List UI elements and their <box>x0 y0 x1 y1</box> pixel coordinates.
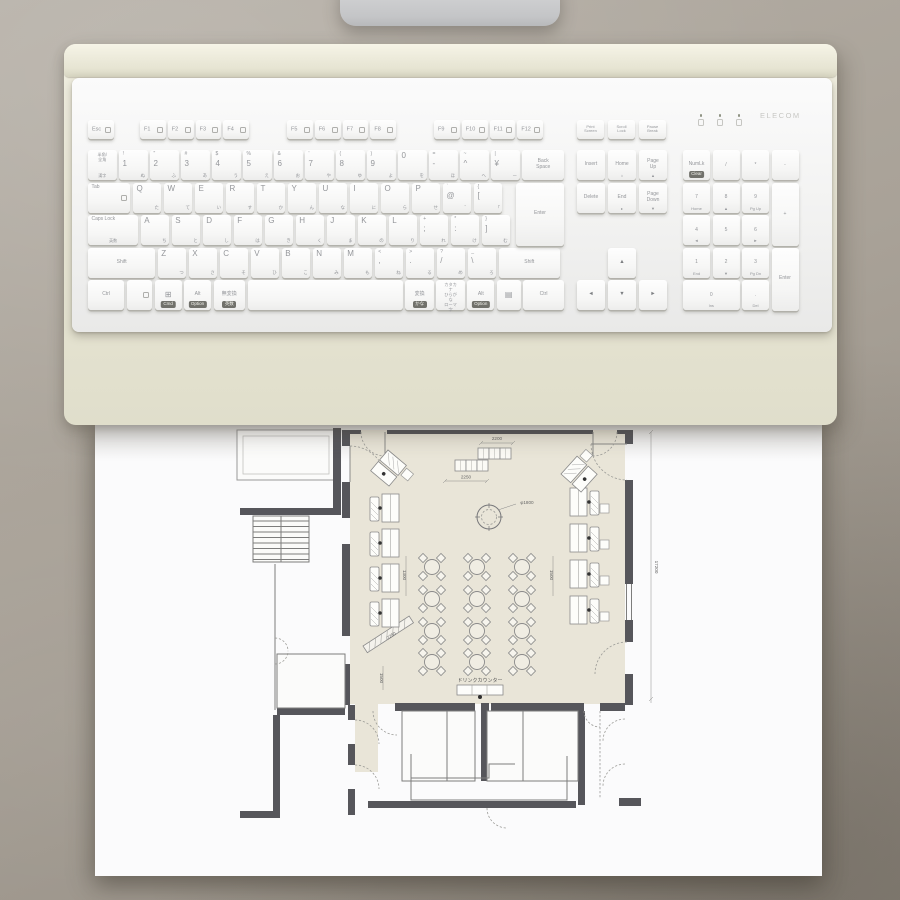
key-label: 無変換 <box>222 292 237 298</box>
key-label: 7 <box>695 195 698 200</box>
round-table <box>470 592 485 607</box>
key-kana-label: よ <box>389 174 394 179</box>
key-shift-label: * <box>454 217 456 222</box>
key-kana-label: た <box>154 206 159 211</box>
kb-main-block: 半角/ 全角漢字!1ぬ"2ふ#3あ$4う%5え&6お'7や(8ゆ)9よ0を=-ほ… <box>88 150 564 313</box>
key-shift-label: $ <box>216 152 219 157</box>
side-table <box>600 504 609 513</box>
key-f: Fは <box>234 215 263 245</box>
key-insert: Insert <box>577 150 605 180</box>
dimension-label: 1500 <box>379 673 384 684</box>
key-shift-label: _ <box>471 250 474 255</box>
key-f5: F5 <box>287 120 313 139</box>
round-table <box>515 655 530 670</box>
key-sub-label: Home <box>691 207 702 211</box>
scroll-lock-icon <box>736 119 742 126</box>
key-label: Shift <box>524 260 534 266</box>
key-shift-label: < <box>378 250 381 255</box>
key-shift-label: ~ <box>464 152 467 157</box>
key-kana-label: せ <box>433 206 438 211</box>
f3-icon <box>212 127 218 133</box>
key-label: カタカナ ひらがな ローマ字 <box>443 282 457 312</box>
key-kana-label: こ <box>303 271 308 276</box>
key-label: 6 <box>754 228 757 233</box>
key-label: Q <box>136 185 142 193</box>
key-f4: F4 <box>223 120 249 139</box>
plan-annex-room <box>237 430 335 480</box>
key-2: "2ふ <box>150 150 179 180</box>
key-o: Oら <box>381 183 410 213</box>
dimension-label: 1300 <box>402 570 407 581</box>
key-label: @ <box>446 192 454 200</box>
key-7: '7や <box>305 150 334 180</box>
key-label: 9 <box>371 160 375 168</box>
key-kana-label: め <box>458 271 463 276</box>
key-x: Xさ <box>189 248 218 278</box>
key-numpad-plus: + <box>772 183 799 246</box>
f6-icon <box>332 127 338 133</box>
key-numpad-4: 4◄ <box>683 215 710 245</box>
key-shift-label: ? <box>440 250 443 255</box>
key-label: . <box>409 257 411 265</box>
key-label: F12 <box>521 127 530 133</box>
key-label: ] <box>485 225 487 233</box>
key-label: W <box>167 185 175 193</box>
key-kana-label: き <box>286 239 291 244</box>
key-v: Vひ <box>251 248 280 278</box>
key-label: ^ <box>464 160 468 168</box>
key-numpad-enter: Enter <box>772 248 799 311</box>
key-i: Iに <box>350 183 379 213</box>
key-label: / <box>725 163 726 168</box>
key-kana-label: ん <box>309 206 314 211</box>
key-numpad-3: 3Pg Dn <box>742 248 769 278</box>
key-label: L <box>392 217 396 225</box>
key-label: E <box>198 185 203 193</box>
kb-row-1: 半角/ 全角漢字!1ぬ"2ふ#3あ$4う%5え&6お'7や(8ゆ)9よ0を=-ほ… <box>88 150 564 180</box>
key-kana-label: な <box>340 206 345 211</box>
led-dot <box>700 114 703 117</box>
key-kana-label: む <box>503 239 508 244</box>
key-label: Back Space <box>536 159 550 171</box>
f5-icon <box>304 127 310 133</box>
key-menu: ▤ <box>497 280 521 310</box>
key-label: 6 <box>278 160 282 168</box>
key-kana-label: ろ <box>489 271 494 276</box>
key-kana-label: ほ <box>451 174 456 179</box>
key-label: F <box>237 217 242 225</box>
key-shift-label: ( <box>340 152 342 157</box>
f12-icon <box>534 127 540 133</box>
key-3: #3あ <box>181 150 210 180</box>
key-delete: Delete <box>577 183 605 213</box>
key-kana-label: ひ <box>272 271 277 276</box>
key-sub-label: ▼ <box>651 207 655 211</box>
kb-system-keys: Print ScreenScroll LockPause Break <box>577 120 666 139</box>
key-sub-label: ▼ <box>724 272 728 276</box>
key-label: / <box>440 257 442 265</box>
key-space <box>248 280 403 310</box>
key-shift-label: { <box>477 185 479 190</box>
key-period: >.る <box>406 248 435 278</box>
key-label: Delete <box>584 195 598 201</box>
booth-left <box>370 494 399 522</box>
key-semicolon: +;れ <box>420 215 449 245</box>
key-kana-label: や <box>327 174 332 179</box>
key-kana-label: す <box>247 206 252 211</box>
key-f6: F6 <box>315 120 341 139</box>
key-a: Aち <box>141 215 170 245</box>
key-shift-label: ' <box>309 152 310 157</box>
key-caps-lock: Caps Lock英数 <box>88 215 138 245</box>
key-f8: F8 <box>370 120 396 139</box>
key-lbracket: {[「 <box>474 183 503 213</box>
side-table <box>600 576 609 585</box>
key-fn <box>127 280 152 310</box>
key-label: 2 <box>154 160 158 168</box>
key-kana-label: さ <box>210 271 215 276</box>
round-table <box>425 592 440 607</box>
key-label: P <box>415 185 420 193</box>
key-m: Mも <box>344 248 373 278</box>
key-kana-label: へ <box>482 174 487 179</box>
key-label: 4 <box>695 228 698 233</box>
fkey-group-2: F5F6F7F8 <box>287 120 396 139</box>
esc-icon <box>105 127 111 133</box>
key-label: 1 <box>695 260 698 265</box>
key-kana-label: く <box>317 239 322 244</box>
key-label: Y <box>291 185 296 193</box>
key-label: NumLk <box>689 162 705 168</box>
key-g: Gき <box>265 215 294 245</box>
key-mac-badge: かな <box>413 301 427 308</box>
key-enter: Enter <box>516 183 564 246</box>
key-kana-label: ふ <box>172 174 177 179</box>
person-marker <box>378 541 382 545</box>
key-kana-label: る <box>427 271 432 276</box>
key-backslash: _\ろ <box>468 248 497 278</box>
key-kana-label: い <box>216 206 221 211</box>
key-b: Bこ <box>282 248 311 278</box>
side-table <box>600 612 609 621</box>
key-sub-label: Pg Dn <box>750 272 761 276</box>
key-home: Home⌂ <box>608 150 636 180</box>
key-label: F9 <box>438 127 444 133</box>
key-label: N <box>316 250 322 258</box>
key-mac-badge: 英数 <box>222 301 236 308</box>
key-label: 5 <box>247 160 251 168</box>
key-caret: ~^へ <box>460 150 489 180</box>
kb-row-3: Caps Lock英数AちSとDしFはGきHくJまKのLり+;れ*:け}]む <box>88 215 564 245</box>
key-label: Insert <box>585 162 598 168</box>
key-shift-label: } <box>485 217 487 222</box>
kb-row-4: ShiftZつXさCそVひBこNみMも<,ね>.る?/め_\ろShift <box>88 248 564 278</box>
key-page-up: Page Up▲ <box>639 150 667 180</box>
key-kana-label: う <box>234 174 239 179</box>
key-1: !1ぬ <box>119 150 148 180</box>
fkey-group-1: F1F2F3F4 <box>140 120 249 139</box>
key-numpad-slash: / <box>713 150 740 180</box>
key-label: H <box>299 217 305 225</box>
round-table <box>470 560 485 575</box>
key-label: A <box>144 217 149 225</box>
key-label: 0 <box>402 152 406 160</box>
key-label: 2 <box>725 260 728 265</box>
person-marker <box>378 611 382 615</box>
key-kana-label: も <box>365 271 370 276</box>
key-pause-break: Pause Break <box>639 120 666 139</box>
key-kana-label: の <box>379 239 384 244</box>
key-katakana-hiragana: カタカナ ひらがな ローマ字 <box>436 280 465 310</box>
key-n: Nみ <box>313 248 342 278</box>
key-label: Ctrl <box>102 292 110 298</box>
key-rbracket: }]む <box>482 215 511 245</box>
round-table <box>425 560 440 575</box>
key-sub-label: End <box>693 272 700 276</box>
key-ctrl-left: Ctrl <box>88 280 124 310</box>
dimension-label: 1500 <box>549 570 554 581</box>
key-mac-badge: Clear <box>689 171 705 178</box>
key-scroll-lock: Scroll Lock <box>608 120 635 139</box>
key-shift-label: # <box>185 152 188 157</box>
key-label: U <box>322 185 328 193</box>
key-alt-right: AltOption <box>467 280 494 310</box>
key-kana-label: み <box>334 271 339 276</box>
key-label: ► <box>650 292 655 298</box>
key-numpad-9: 9Pg Up <box>742 183 769 213</box>
round-table <box>470 655 485 670</box>
key-f11: F11 <box>490 120 516 139</box>
key-kana-label: は <box>255 239 260 244</box>
key-label: 5 <box>725 228 728 233</box>
key-kana-label: 「 <box>495 206 500 211</box>
key-shift-label: + <box>423 217 426 222</box>
key-numpad-8: 8▲ <box>713 183 740 213</box>
f10-icon <box>479 127 485 133</box>
key-q: Qた <box>133 183 162 213</box>
person-marker <box>587 536 591 540</box>
key-label: ⊞ <box>165 291 172 299</box>
key-label: 9 <box>754 195 757 200</box>
key-0: 0を <box>398 150 427 180</box>
key-comma: <,ね <box>375 248 404 278</box>
key-arrow-left: ◄ <box>577 280 605 310</box>
key-kana-label: と <box>193 239 198 244</box>
key-numpad-6: 6► <box>742 215 769 245</box>
key-f1: F1 <box>140 120 166 139</box>
key-print-screen: Print Screen <box>577 120 604 139</box>
key-label: 1 <box>123 160 127 168</box>
key-mac-badge: Option <box>472 301 490 308</box>
round-table <box>515 560 530 575</box>
scroll-lock-indicator <box>736 114 742 126</box>
key-end: End▸ <box>608 183 636 213</box>
key-j: Jま <box>327 215 356 245</box>
booth-left <box>370 529 399 557</box>
key-kana-label: け <box>472 239 477 244</box>
round-table <box>515 592 530 607</box>
key-label: 3 <box>754 260 757 265</box>
key-numpad-asterisk: * <box>742 150 769 180</box>
key-e: Eい <box>195 183 224 213</box>
key-kana-label: か <box>278 206 283 211</box>
key-label: F2 <box>172 127 178 133</box>
key-label: Tab <box>92 185 100 191</box>
f7-icon <box>359 127 365 133</box>
monitor-stand-base <box>340 0 560 26</box>
key-label: ▲ <box>619 260 624 266</box>
key-shift-label: > <box>409 250 412 255</box>
key-yen: |¥ー <box>491 150 520 180</box>
key-minus: =-ほ <box>429 150 458 180</box>
key-sub-label: ▲ <box>651 174 655 178</box>
key-label: Page Down <box>647 192 660 204</box>
key-label: ▤ <box>505 291 513 299</box>
plan-floor-strip <box>355 704 378 772</box>
key-backspace: Back Space <box>522 150 564 180</box>
key-f3: F3 <box>196 120 222 139</box>
key-label: Esc <box>92 127 101 133</box>
key-numpad-0: 0Ins <box>683 280 740 310</box>
key-colon: *:け <box>451 215 480 245</box>
keyboard: ELECOM EscF1F2F3F4F5F6F7F8F9F10F11F12 Pr… <box>72 78 832 332</box>
person-marker <box>587 608 591 612</box>
key-mac-badge: Option <box>188 301 206 308</box>
key-label: F10 <box>466 127 475 133</box>
f8-icon <box>387 127 393 133</box>
booth-left <box>370 564 399 592</box>
key-label: K <box>361 217 366 225</box>
key-num-lock: NumLkClear <box>683 150 710 180</box>
key-label: F6 <box>319 127 325 133</box>
key-l: Lり <box>389 215 418 245</box>
key-f12: F12 <box>517 120 543 139</box>
key-kana-label: ち <box>162 239 167 244</box>
key-w: Wて <box>164 183 193 213</box>
key-kana-label: ら <box>402 206 407 211</box>
caps-lock-indicator <box>717 114 723 126</box>
key-arrow-right: ► <box>639 280 667 310</box>
key-shift-label: ! <box>123 152 124 157</box>
fkey-group-3: F9F10F11F12 <box>434 120 543 139</box>
key-t: Tか <box>257 183 286 213</box>
side-table <box>600 540 609 549</box>
key-label: ◄ <box>588 292 593 298</box>
key-kana-label: ぬ <box>141 174 146 179</box>
key-label: F7 <box>347 127 353 133</box>
key-label: ¥ <box>495 160 499 168</box>
f1-icon <box>157 127 163 133</box>
key-henkan: 変換かな <box>405 280 434 310</box>
key-label: O <box>384 185 390 193</box>
key-label: F11 <box>494 127 503 133</box>
num-lock-icon <box>698 119 704 126</box>
key-mac-badge: Cmd <box>161 301 176 308</box>
key-label: X <box>192 250 197 258</box>
key-kana-label: て <box>185 206 190 211</box>
key-label: 0 <box>710 293 713 298</box>
dimension-label: 2250 <box>461 475 472 480</box>
key-label: \ <box>471 257 473 265</box>
key-sub-label: 漢字 <box>98 174 106 178</box>
person-marker <box>587 572 591 576</box>
key-kana-label: ま <box>348 239 353 244</box>
dimension-label: 17200 <box>654 561 659 574</box>
round-table <box>425 655 440 670</box>
key-5: %5え <box>243 150 272 180</box>
key-f7: F7 <box>343 120 369 139</box>
key-6: &6お <box>274 150 303 180</box>
key-shift-label: = <box>433 152 436 157</box>
key-p: Pせ <box>412 183 441 213</box>
indicator-lights <box>698 114 742 126</box>
key-label: R <box>229 185 235 193</box>
key-label: 変換 <box>415 292 425 298</box>
key-at: `@゛ <box>443 183 472 213</box>
key-label: 4 <box>216 160 220 168</box>
key-f10: F10 <box>462 120 488 139</box>
key-label: Z <box>161 250 166 258</box>
key-shift-left: Shift <box>88 248 155 278</box>
key-kana-label: ゛ <box>464 206 469 211</box>
key-label: * <box>755 163 757 168</box>
key-9: )9よ <box>367 150 396 180</box>
key-label: M <box>347 250 354 258</box>
key-numpad-1: 1End <box>683 248 710 278</box>
key-label: Enter <box>534 211 546 217</box>
key-numpad-7: 7Home <box>683 183 710 213</box>
key-win: ⊞Cmd <box>155 280 182 310</box>
key-label: 3 <box>185 160 189 168</box>
key-sub-label: ► <box>754 239 758 243</box>
key-sub-label: ▸ <box>621 207 623 211</box>
key-u: Uな <box>319 183 348 213</box>
key-label: Alt <box>478 292 484 298</box>
key-label: I <box>353 185 355 193</box>
key-label: . <box>755 293 756 298</box>
key-label: J <box>330 217 334 225</box>
key-arrow-down: ▼ <box>608 280 636 310</box>
key-ctrl-right: Ctrl <box>523 280 564 310</box>
key-label: F5 <box>291 127 297 133</box>
key-sub-label: ▲ <box>724 207 728 211</box>
kb-row-2: TabQたWてEいRすTかYんUなIにOらPせ`@゛{[「 <box>88 183 564 213</box>
key-y: Yん <box>288 183 317 213</box>
caps-lock-icon <box>717 119 723 126</box>
key-s: Sと <box>172 215 201 245</box>
key-kana-label: り <box>410 239 415 244</box>
drink-counter-label: ドリンクカウンター <box>457 677 502 684</box>
key-label: Print Screen <box>584 125 597 135</box>
f11-icon <box>506 127 512 133</box>
f2-icon <box>185 127 191 133</box>
key-label: B <box>285 250 290 258</box>
key-f2: F2 <box>168 120 194 139</box>
desk-scene: ドリンクカウンター 22002250φ180013001500172002250… <box>0 0 900 900</box>
key-label: F8 <box>374 127 380 133</box>
dimension-label: φ1800 <box>520 500 534 505</box>
key-kana-label: ゆ <box>358 174 363 179</box>
round-table <box>515 624 530 639</box>
key-sub-label: ◄ <box>695 239 699 243</box>
person-marker <box>587 500 591 504</box>
round-table <box>470 624 485 639</box>
key-label: - <box>784 163 786 168</box>
person-marker <box>378 576 382 580</box>
key-kana-label: お <box>296 174 301 179</box>
key-label: ▼ <box>619 292 624 298</box>
key-d: Dし <box>203 215 232 245</box>
